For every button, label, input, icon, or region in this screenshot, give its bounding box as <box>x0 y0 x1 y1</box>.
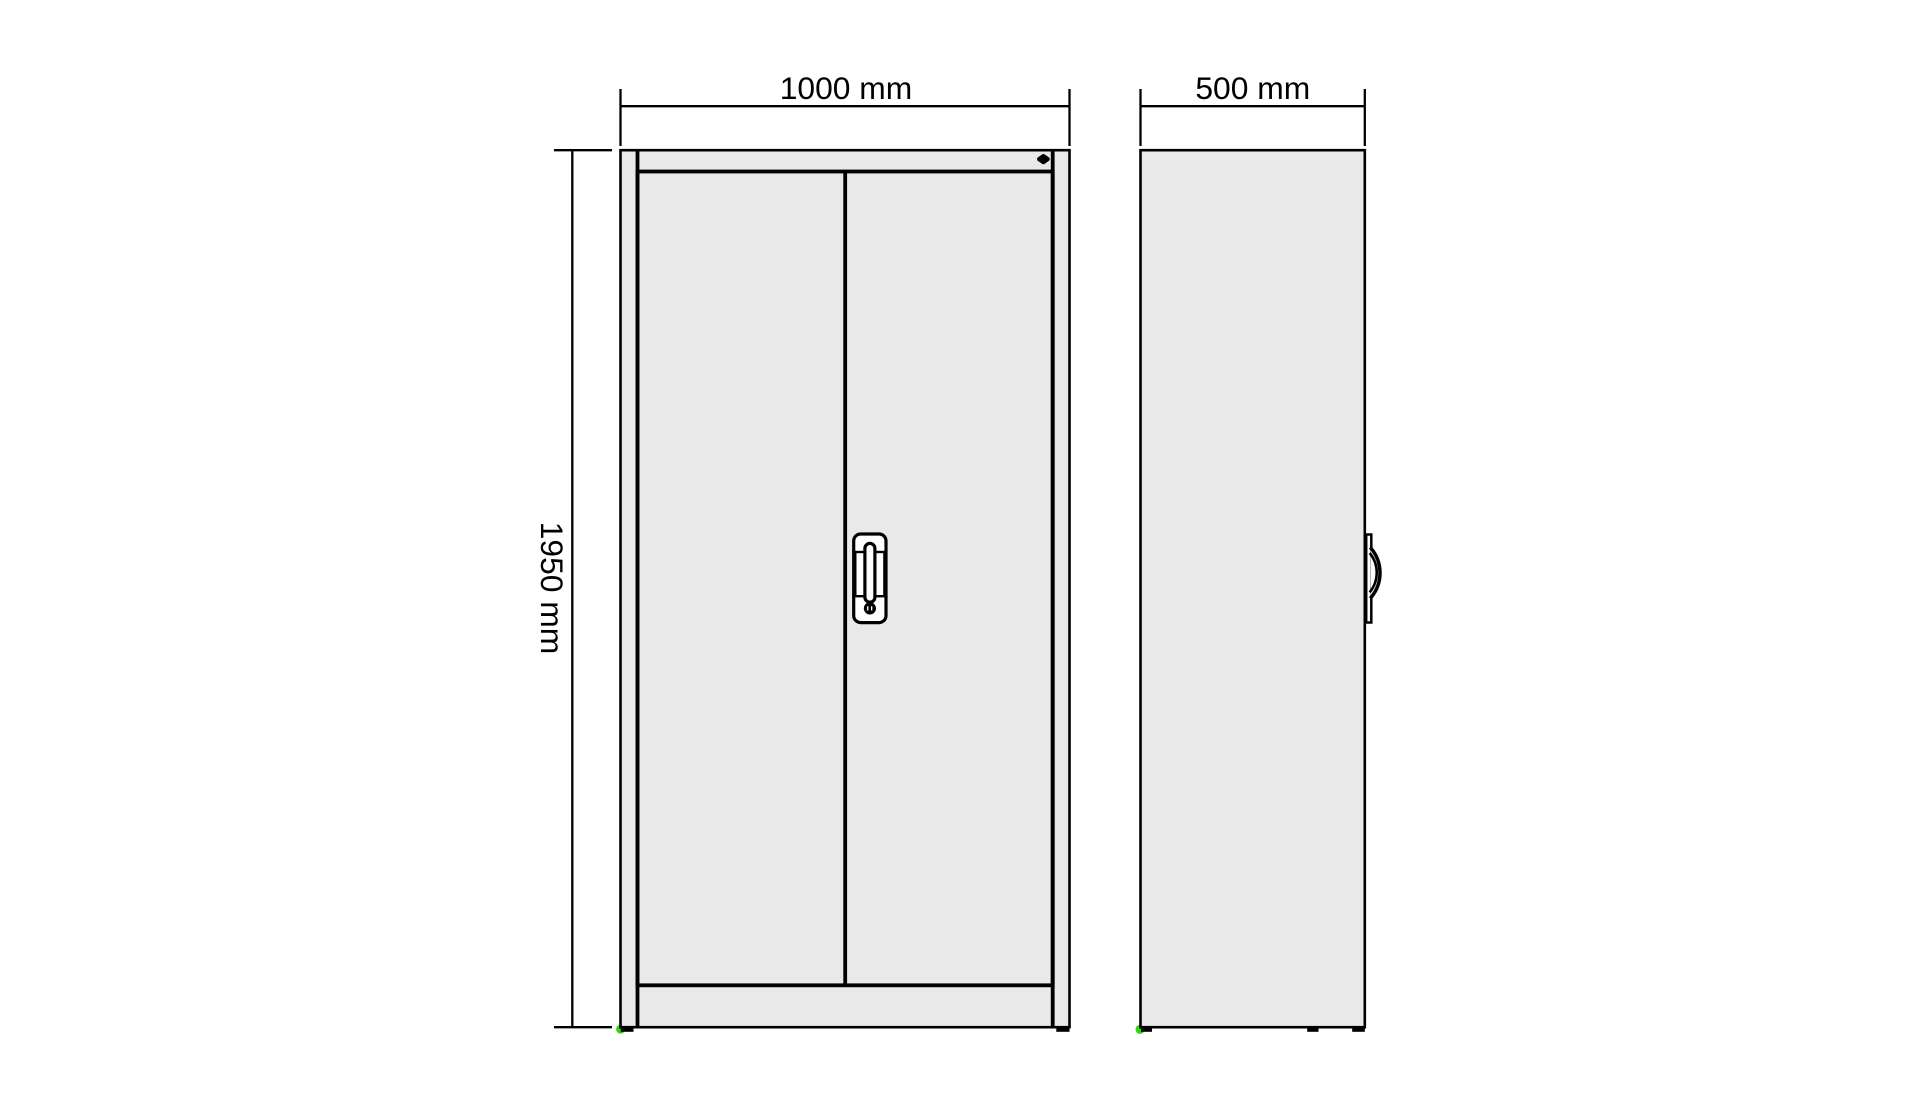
svg-text:1000 mm: 1000 mm <box>780 70 913 106</box>
svg-text:1950 mm: 1950 mm <box>534 522 570 655</box>
svg-text:500 mm: 500 mm <box>1195 70 1310 106</box>
